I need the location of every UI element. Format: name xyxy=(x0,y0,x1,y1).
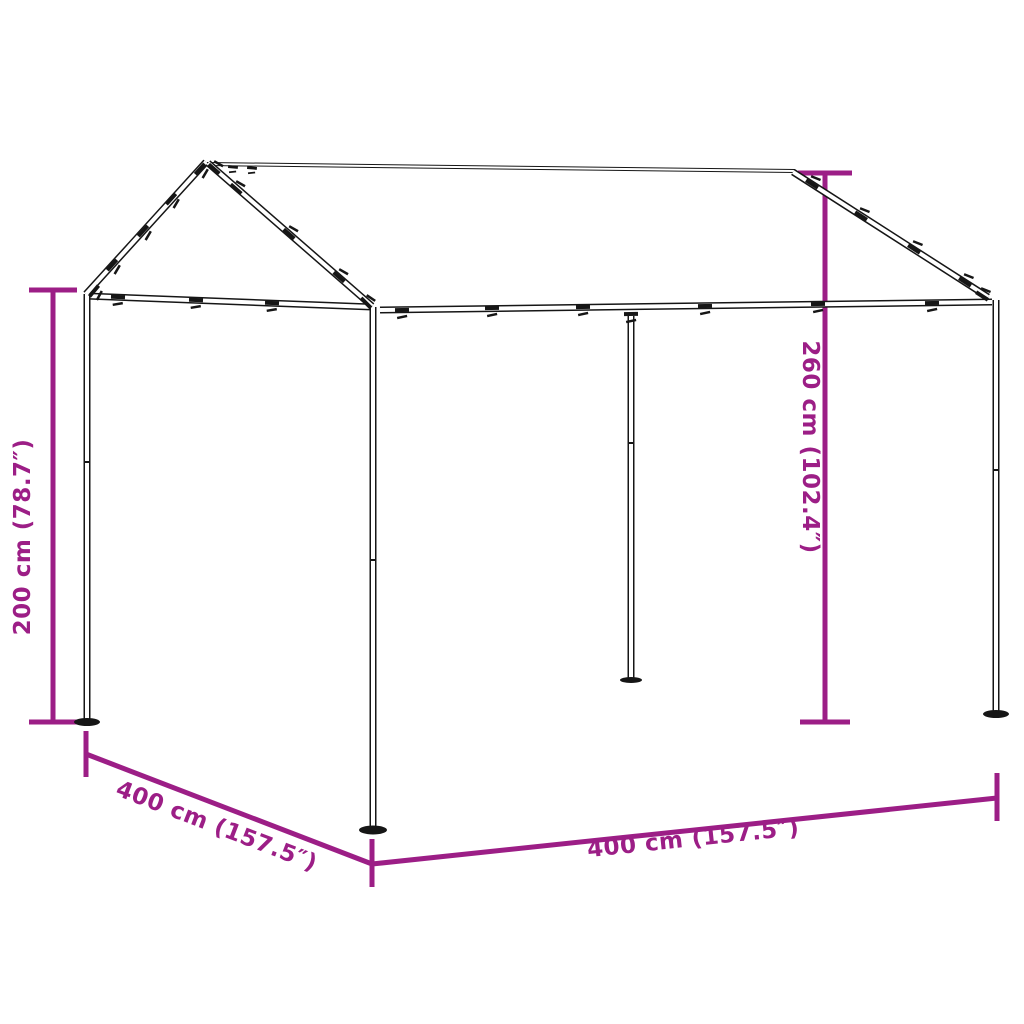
label-width-front: 400 cm (157.5″) xyxy=(586,815,801,863)
front-beam xyxy=(86,296,372,307)
side-beam xyxy=(380,302,992,310)
middle-post-base-plate xyxy=(620,677,642,683)
label-height-left: 200 cm (78.7″) xyxy=(10,439,36,636)
canopy-frame xyxy=(74,158,1009,834)
dimension-line-height-left xyxy=(29,290,77,722)
label-depth-left: 400 cm (157.5″) xyxy=(112,776,320,877)
rear-rafter xyxy=(793,172,988,297)
front-right-post-base-plate xyxy=(359,826,387,835)
dimension-lines xyxy=(29,173,997,887)
front-left-post-base-plate xyxy=(74,718,100,726)
front-right-post xyxy=(359,307,387,835)
canopy-diagram-canvas: 200 cm (78.7″) 260 cm (102.4″) 400 cm (1… xyxy=(0,0,1024,1024)
front-left-post xyxy=(74,294,100,726)
rear-right-post xyxy=(983,300,1009,718)
label-height-right: 260 cm (102.4″) xyxy=(797,340,823,553)
dimension-labels: 200 cm (78.7″) 260 cm (102.4″) 400 cm (1… xyxy=(10,340,823,876)
ridge-beam xyxy=(207,164,795,171)
frame-clamps xyxy=(90,158,993,322)
rear-right-post-base-plate xyxy=(983,710,1009,718)
middle-post xyxy=(620,316,642,683)
product-dimension-diagram: 200 cm (78.7″) 260 cm (102.4″) 400 cm (1… xyxy=(0,0,1024,1024)
